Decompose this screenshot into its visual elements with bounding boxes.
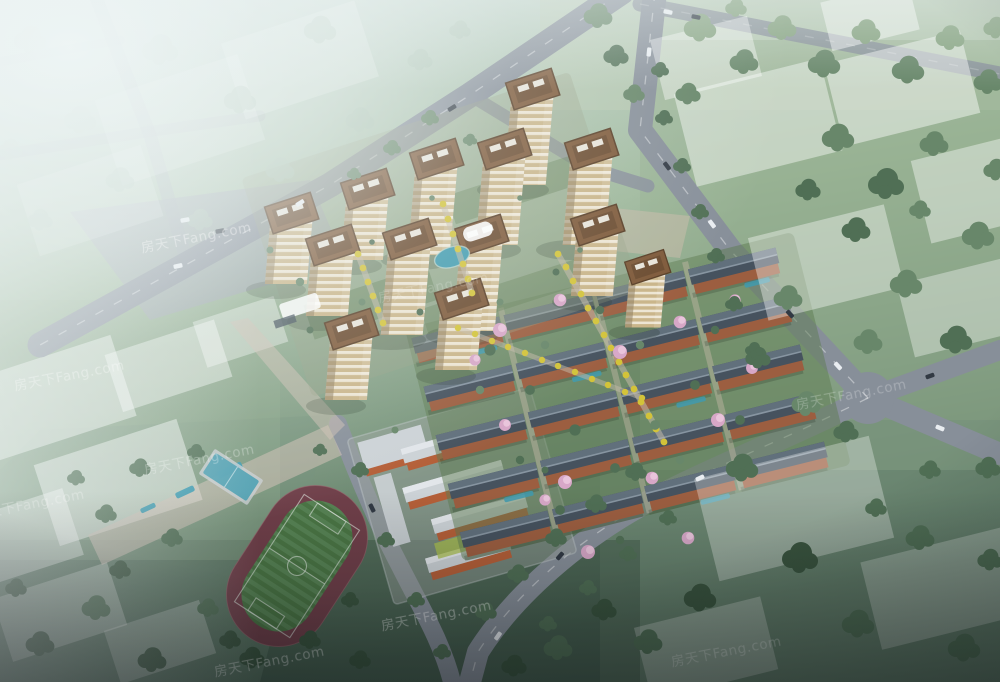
- rendering-scene: [0, 0, 1000, 682]
- aerial-masterplan-rendering: 房天下Fang.com 房天下Fang.com 房天下Fang.com 房天下F…: [0, 0, 1000, 682]
- haze-overlay: [0, 0, 1000, 682]
